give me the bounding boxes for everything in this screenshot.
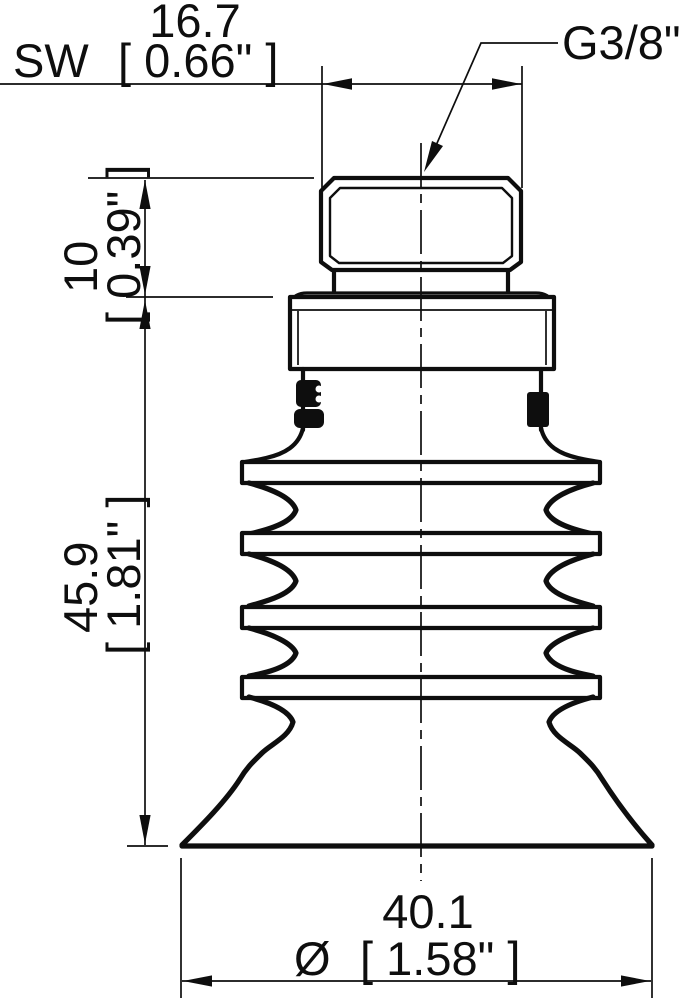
cup-neck-body (245, 369, 599, 462)
body-flare-right (541, 428, 599, 462)
retainer-mark-notch-1 (316, 386, 323, 393)
thread-label: G3/8" (562, 16, 681, 69)
hex-flange (290, 293, 554, 369)
retainer-mark-right (527, 392, 549, 427)
body-flare-left (245, 428, 303, 462)
wrench-arrow-left (323, 78, 352, 90)
retainer-mark-notch-2 (316, 396, 323, 403)
dimension-cup-height: 45.9 [ 1.81" ] (54, 300, 168, 846)
suction-cup-dimension-drawing: 16.7 SW [ 0.66" ] G3/8" 10 [ 0.39" ] 45.… (0, 0, 683, 1000)
thread-leader-line (427, 43, 558, 166)
retainer-mark-left-upper (296, 380, 321, 407)
cup-height-arrow-bottom (139, 815, 150, 844)
bellows-fold-left-3 (249, 628, 296, 676)
diameter-mm-label: 40.1 (382, 885, 473, 938)
diameter-arrow-left (183, 975, 212, 986)
dimension-wrench-size: 16.7 SW [ 0.66" ] (0, 0, 522, 188)
body-sides (303, 369, 541, 430)
diameter-symbol: Ø (294, 932, 331, 985)
bellows-fold-left-2 (249, 554, 296, 606)
diameter-inch-label: [ 1.58" ] (360, 932, 520, 985)
technical-drawing-canvas: 16.7 SW [ 0.66" ] G3/8" 10 [ 0.39" ] 45.… (0, 0, 683, 1000)
cup-height-inch-label: [ 1.81" ] (97, 495, 150, 655)
callout-thread: G3/8" (424, 16, 681, 172)
sealing-lip (182, 697, 652, 846)
bellows-fold-left-1 (249, 483, 296, 534)
lip-skirt-left (182, 697, 293, 845)
fitting-inch-label: [ 0.39" ] (97, 165, 150, 325)
flange-body (290, 297, 554, 369)
diameter-arrow-right (621, 975, 650, 986)
part-outline (182, 143, 652, 881)
lip-skirt-right (549, 697, 652, 845)
retainer-mark-left-lower (294, 409, 324, 428)
bellows-fold-right-3 (546, 628, 593, 676)
dimension-lip-diameter: 40.1 Ø [ 1.58" ] (181, 858, 652, 998)
wrench-prefix-label: SW (13, 34, 89, 87)
bellows-fold-right-2 (546, 554, 593, 606)
thread-leader-arrow (424, 141, 443, 172)
wrench-arrow-right (492, 78, 521, 90)
wrench-inch-label: [ 0.66" ] (118, 34, 278, 87)
bellows-fold-right-1 (546, 483, 593, 534)
